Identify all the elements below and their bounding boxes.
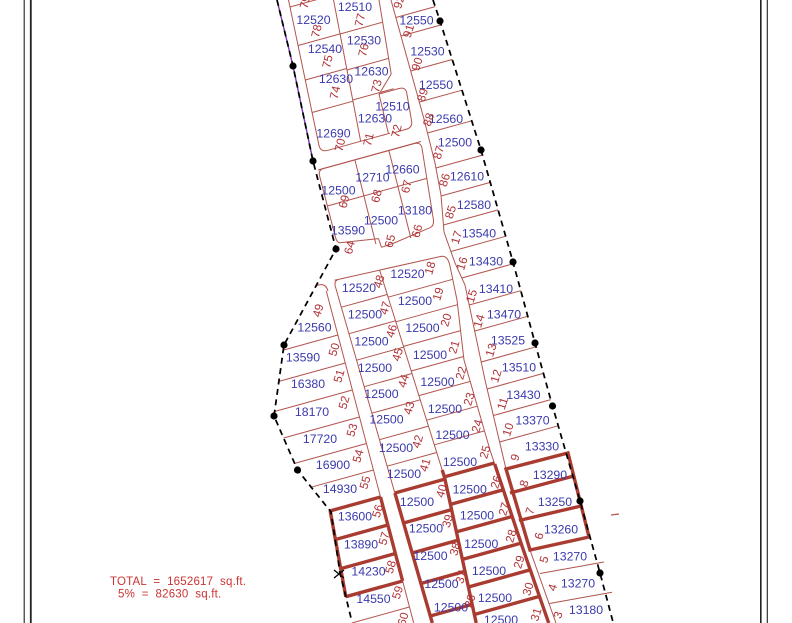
svg-text:12500: 12500 <box>443 455 477 469</box>
svg-text:16900: 16900 <box>316 458 350 472</box>
svg-text:12500: 12500 <box>453 483 487 497</box>
svg-text:12500: 12500 <box>369 413 403 427</box>
svg-text:12510: 12510 <box>338 0 372 14</box>
svg-text:12500: 12500 <box>400 495 434 509</box>
svg-text:12500: 12500 <box>435 428 469 442</box>
svg-text:12500: 12500 <box>420 375 454 389</box>
svg-text:12630: 12630 <box>358 112 392 126</box>
svg-text:17720: 17720 <box>303 432 337 446</box>
svg-text:12500: 12500 <box>478 591 512 605</box>
svg-text:13470: 13470 <box>487 308 521 322</box>
svg-text:12500: 12500 <box>413 549 447 563</box>
svg-text:13430: 13430 <box>506 388 540 402</box>
svg-text:12560: 12560 <box>297 321 331 335</box>
svg-text:12510: 12510 <box>375 100 409 114</box>
svg-text:12520: 12520 <box>390 267 424 281</box>
svg-text:12500: 12500 <box>428 402 462 416</box>
svg-text:TOTAL = 1652617 sq.ft.: TOTAL = 1652617 sq.ft. <box>110 576 246 588</box>
svg-text:13370: 13370 <box>515 414 549 428</box>
svg-text:12530: 12530 <box>410 45 444 59</box>
svg-text:12500: 12500 <box>464 537 498 551</box>
svg-text:13250: 13250 <box>538 495 572 509</box>
svg-text:13590: 13590 <box>331 224 365 238</box>
svg-text:12580: 12580 <box>457 198 491 212</box>
svg-text:13260: 13260 <box>544 523 578 537</box>
svg-text:14930: 14930 <box>323 482 357 496</box>
svg-text:18170: 18170 <box>295 405 329 419</box>
svg-text:13410: 13410 <box>479 282 513 296</box>
svg-text:12500: 12500 <box>354 335 388 349</box>
svg-text:12500: 12500 <box>405 321 439 335</box>
svg-text:13510: 13510 <box>502 361 536 375</box>
svg-text:12500: 12500 <box>460 509 494 523</box>
svg-text:13270: 13270 <box>553 550 587 564</box>
svg-text:12500: 12500 <box>364 387 398 401</box>
svg-text:14550: 14550 <box>356 592 390 606</box>
svg-text:12500: 12500 <box>413 348 447 362</box>
svg-text:12660: 12660 <box>385 163 419 177</box>
svg-text:12500: 12500 <box>484 613 518 623</box>
svg-text:12500: 12500 <box>398 294 432 308</box>
svg-text:12500: 12500 <box>472 564 506 578</box>
svg-text:12630: 12630 <box>354 65 388 79</box>
svg-text:14230: 14230 <box>351 565 385 579</box>
svg-text:13290: 13290 <box>533 468 567 482</box>
svg-text:13540: 13540 <box>462 227 496 241</box>
svg-text:13180: 13180 <box>398 204 432 218</box>
svg-text:5% = 82630 sq.ft.: 5% = 82630 sq.ft. <box>118 589 221 601</box>
svg-text:12610: 12610 <box>450 170 484 184</box>
svg-text:12500: 12500 <box>409 522 443 536</box>
svg-text:12500: 12500 <box>379 441 413 455</box>
svg-text:16380: 16380 <box>291 377 325 391</box>
svg-text:13180: 13180 <box>569 603 603 617</box>
svg-text:13430: 13430 <box>469 255 503 269</box>
svg-text:13890: 13890 <box>344 538 378 552</box>
svg-text:13590: 13590 <box>286 351 320 365</box>
svg-text:13600: 13600 <box>338 510 372 524</box>
svg-text:13270: 13270 <box>561 577 595 591</box>
svg-text:12630: 12630 <box>319 72 353 86</box>
svg-text:13330: 13330 <box>525 440 559 454</box>
svg-text:12500: 12500 <box>364 214 398 228</box>
svg-text:12540: 12540 <box>308 42 342 56</box>
svg-text:12500: 12500 <box>358 361 392 375</box>
